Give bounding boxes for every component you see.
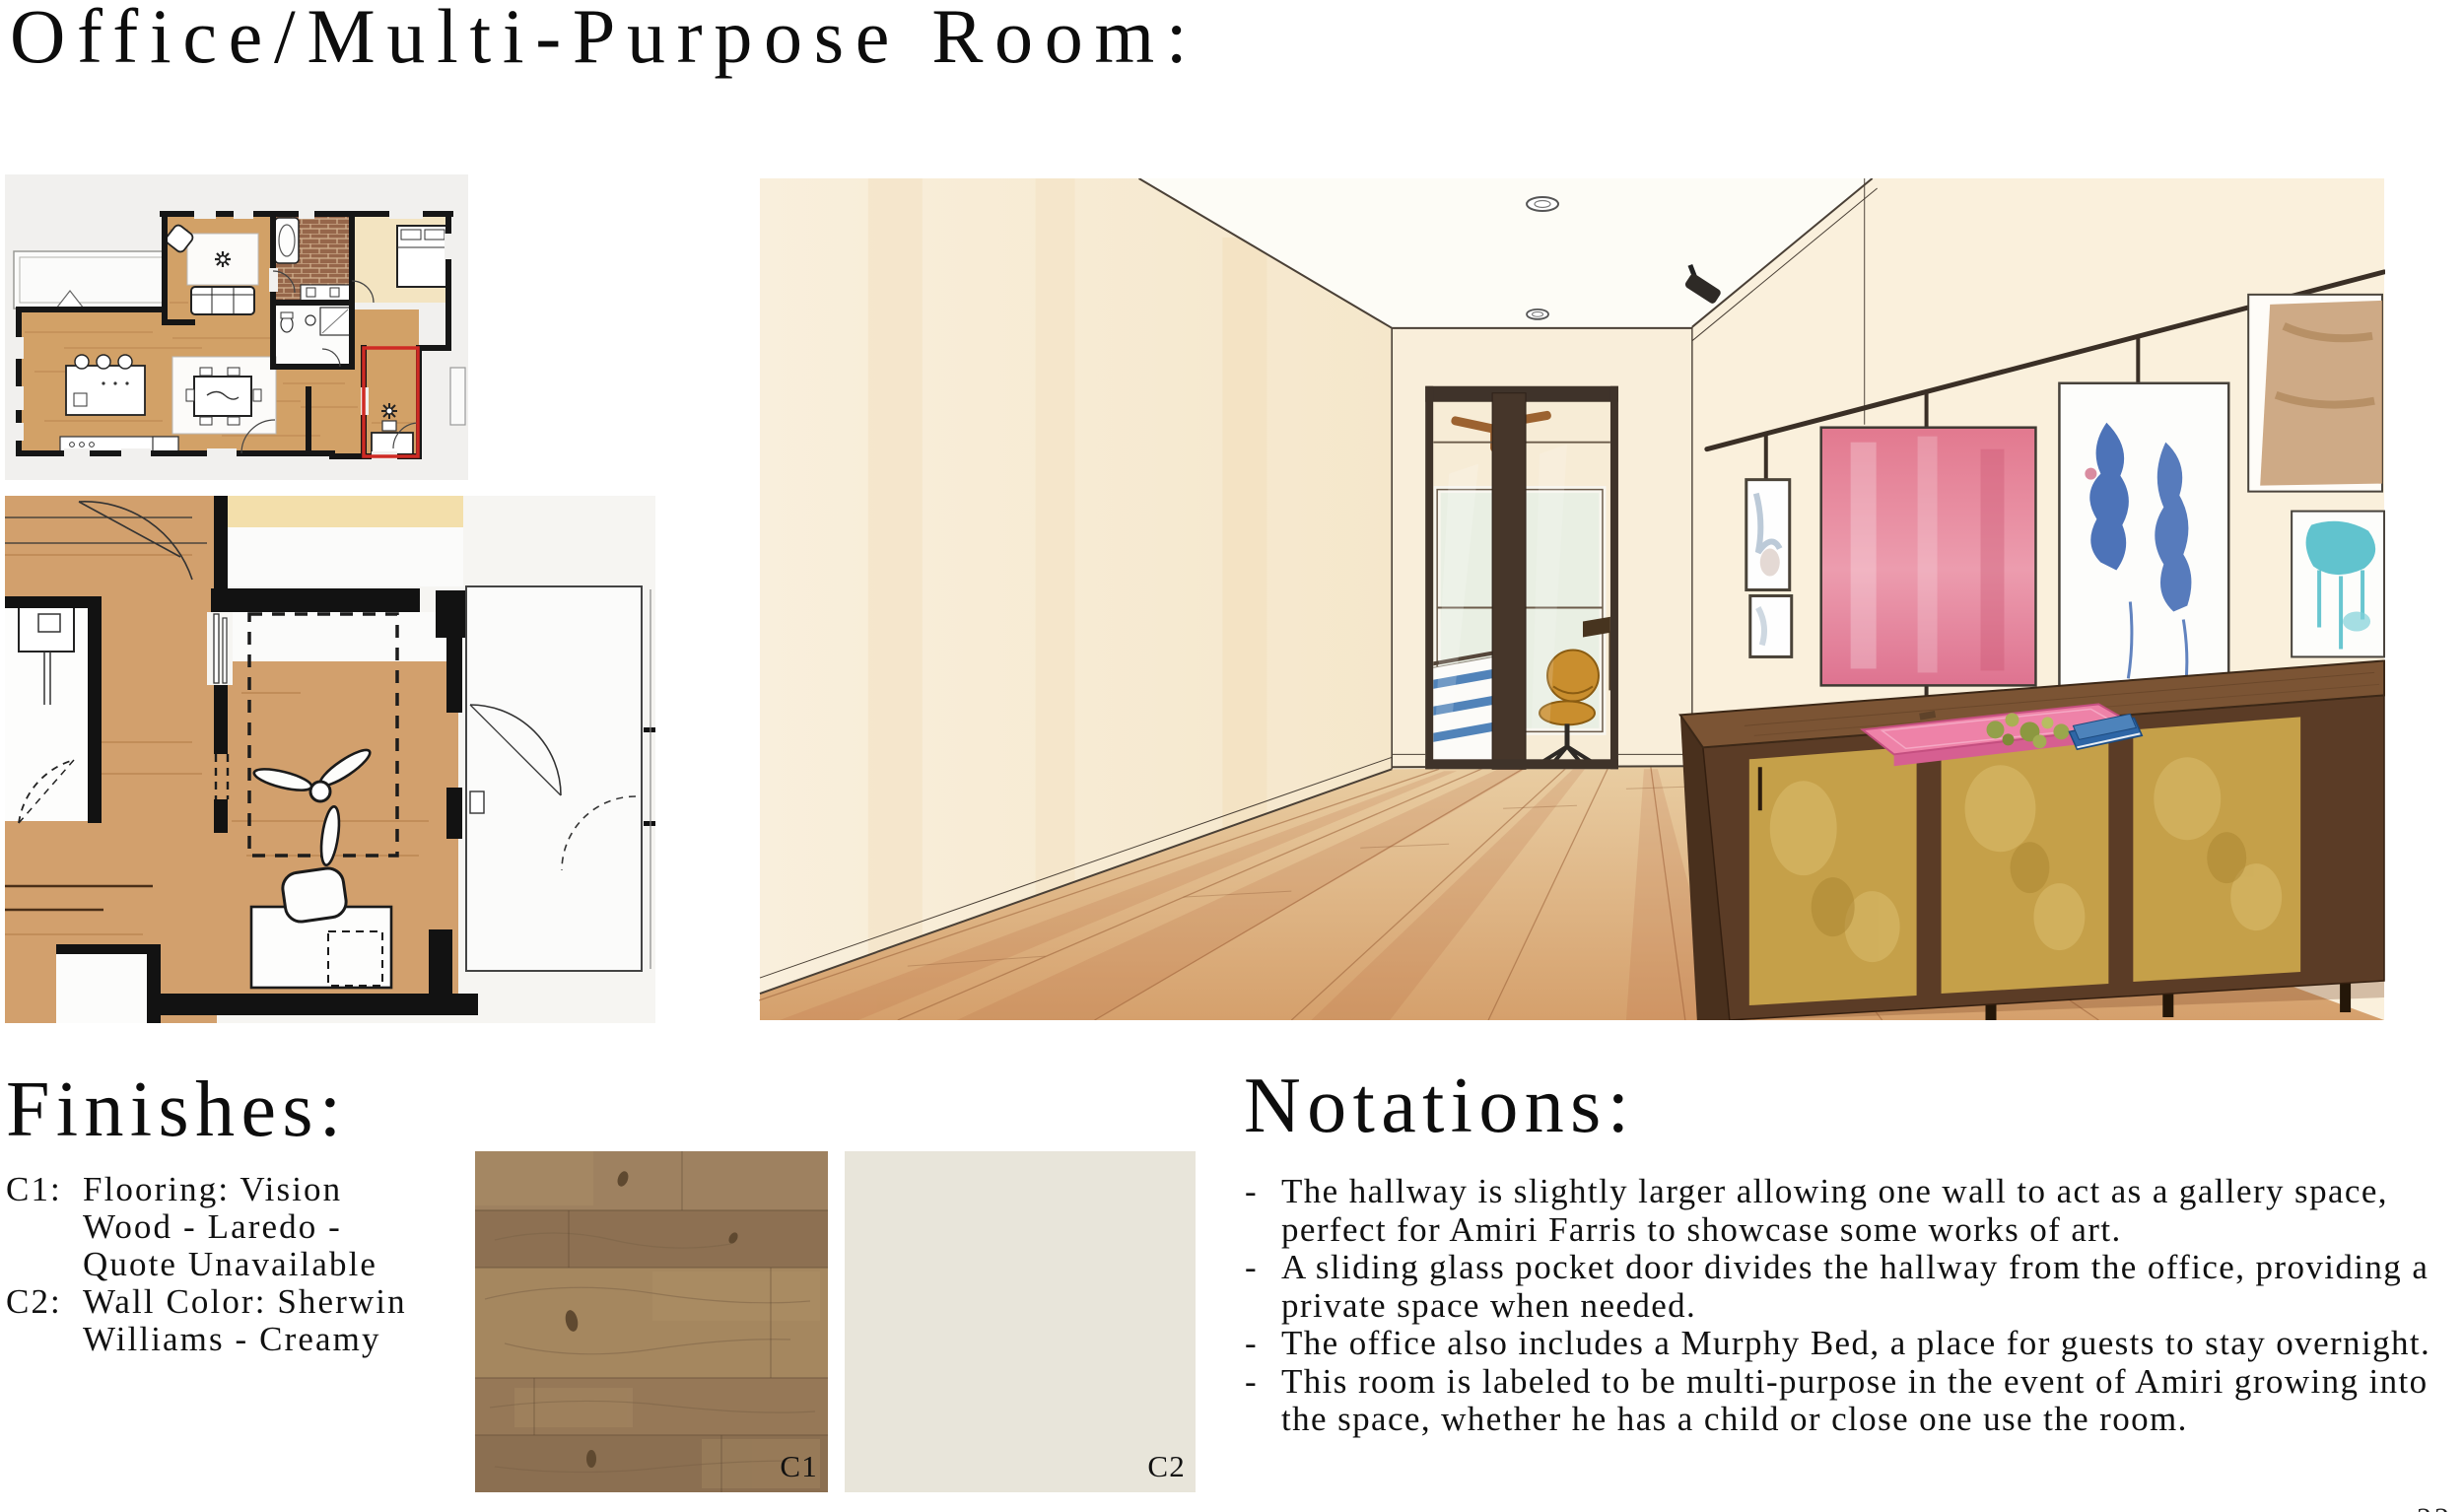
finishes-heading: Finishes:	[6, 1066, 348, 1153]
adjacent-bedroom	[5, 606, 90, 823]
flooring-swatch-c1: C1	[475, 1151, 828, 1492]
teal-drip-painting	[2292, 512, 2384, 657]
bullet-dash: -	[1245, 1173, 1281, 1249]
finishes-list: C1: Flooring: Vision Wood - Laredo - Quo…	[6, 1171, 438, 1358]
finish-text: Flooring: Vision Wood - Laredo - Quote U…	[83, 1171, 438, 1283]
creamy-color-fill	[845, 1151, 1196, 1492]
notations-list: - The hallway is slightly larger allowin…	[1245, 1173, 2464, 1439]
bullet-dash: -	[1245, 1325, 1281, 1363]
floor-plan-overview-image	[5, 174, 468, 480]
dining-furniture	[172, 357, 276, 434]
swatch-label-c2: C2	[1147, 1449, 1186, 1484]
wall-color-swatch-c2: C2	[845, 1151, 1196, 1492]
floor-plan-detail-image	[5, 496, 655, 1023]
tan-painting	[2248, 295, 2382, 492]
hallway-rendering-image	[759, 178, 2385, 1020]
right-closet	[466, 586, 655, 971]
bullet-dash: -	[1245, 1363, 1281, 1439]
design-board-page: Office/Multi-Purpose Room:	[0, 0, 2464, 1512]
finish-label: C1:	[6, 1171, 83, 1283]
notation-item: - The hallway is slightly larger allowin…	[1245, 1173, 2464, 1249]
pink-painting	[1821, 428, 2036, 686]
swatch-label-c1: C1	[780, 1449, 818, 1484]
notations-heading: Notations:	[1244, 1063, 1635, 1149]
notation-item: - A sliding glass pocket door divides th…	[1245, 1249, 2464, 1325]
closet-floor	[56, 954, 147, 1023]
glass-pocket-door	[1425, 386, 1618, 772]
notation-item: - The office also includes a Murphy Bed,…	[1245, 1325, 2464, 1363]
small-framed-art	[1746, 480, 1792, 657]
bullet-dash: -	[1245, 1249, 1281, 1325]
page-number: 22	[2417, 1502, 2452, 1512]
finish-item-c1: C1: Flooring: Vision Wood - Laredo - Quo…	[6, 1171, 438, 1283]
finish-text: Wall Color: Sherwin Williams - Creamy	[83, 1283, 438, 1358]
page-title: Office/Multi-Purpose Room:	[10, 0, 1198, 79]
bedroom-bed	[397, 226, 448, 287]
brass-door-panels	[1749, 717, 2300, 1005]
finish-item-c2: C2: Wall Color: Sherwin Williams - Cream…	[6, 1283, 438, 1358]
finish-label: C2:	[6, 1283, 83, 1358]
notation-item: - This room is labeled to be multi-purpo…	[1245, 1363, 2464, 1439]
